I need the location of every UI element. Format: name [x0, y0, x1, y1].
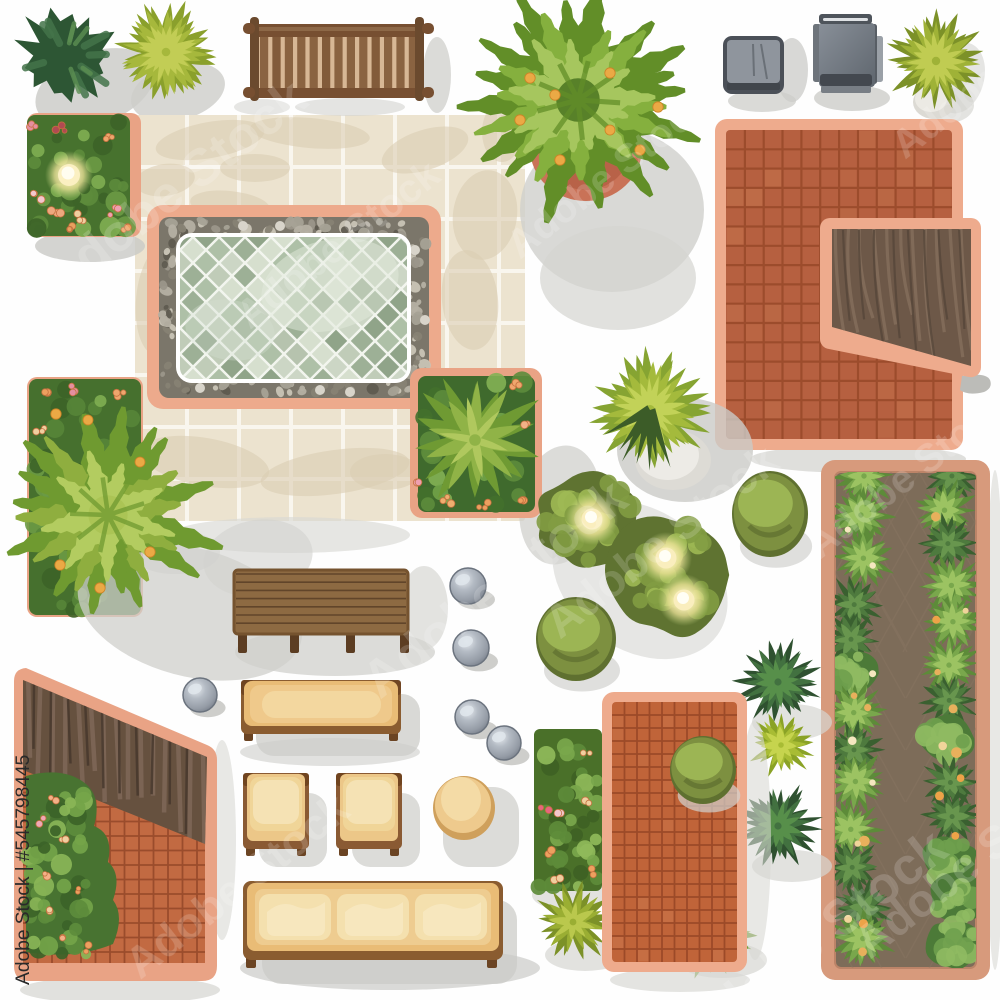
svg-text:Adobe Stock | #545798445: Adobe Stock | #545798445: [12, 755, 34, 985]
